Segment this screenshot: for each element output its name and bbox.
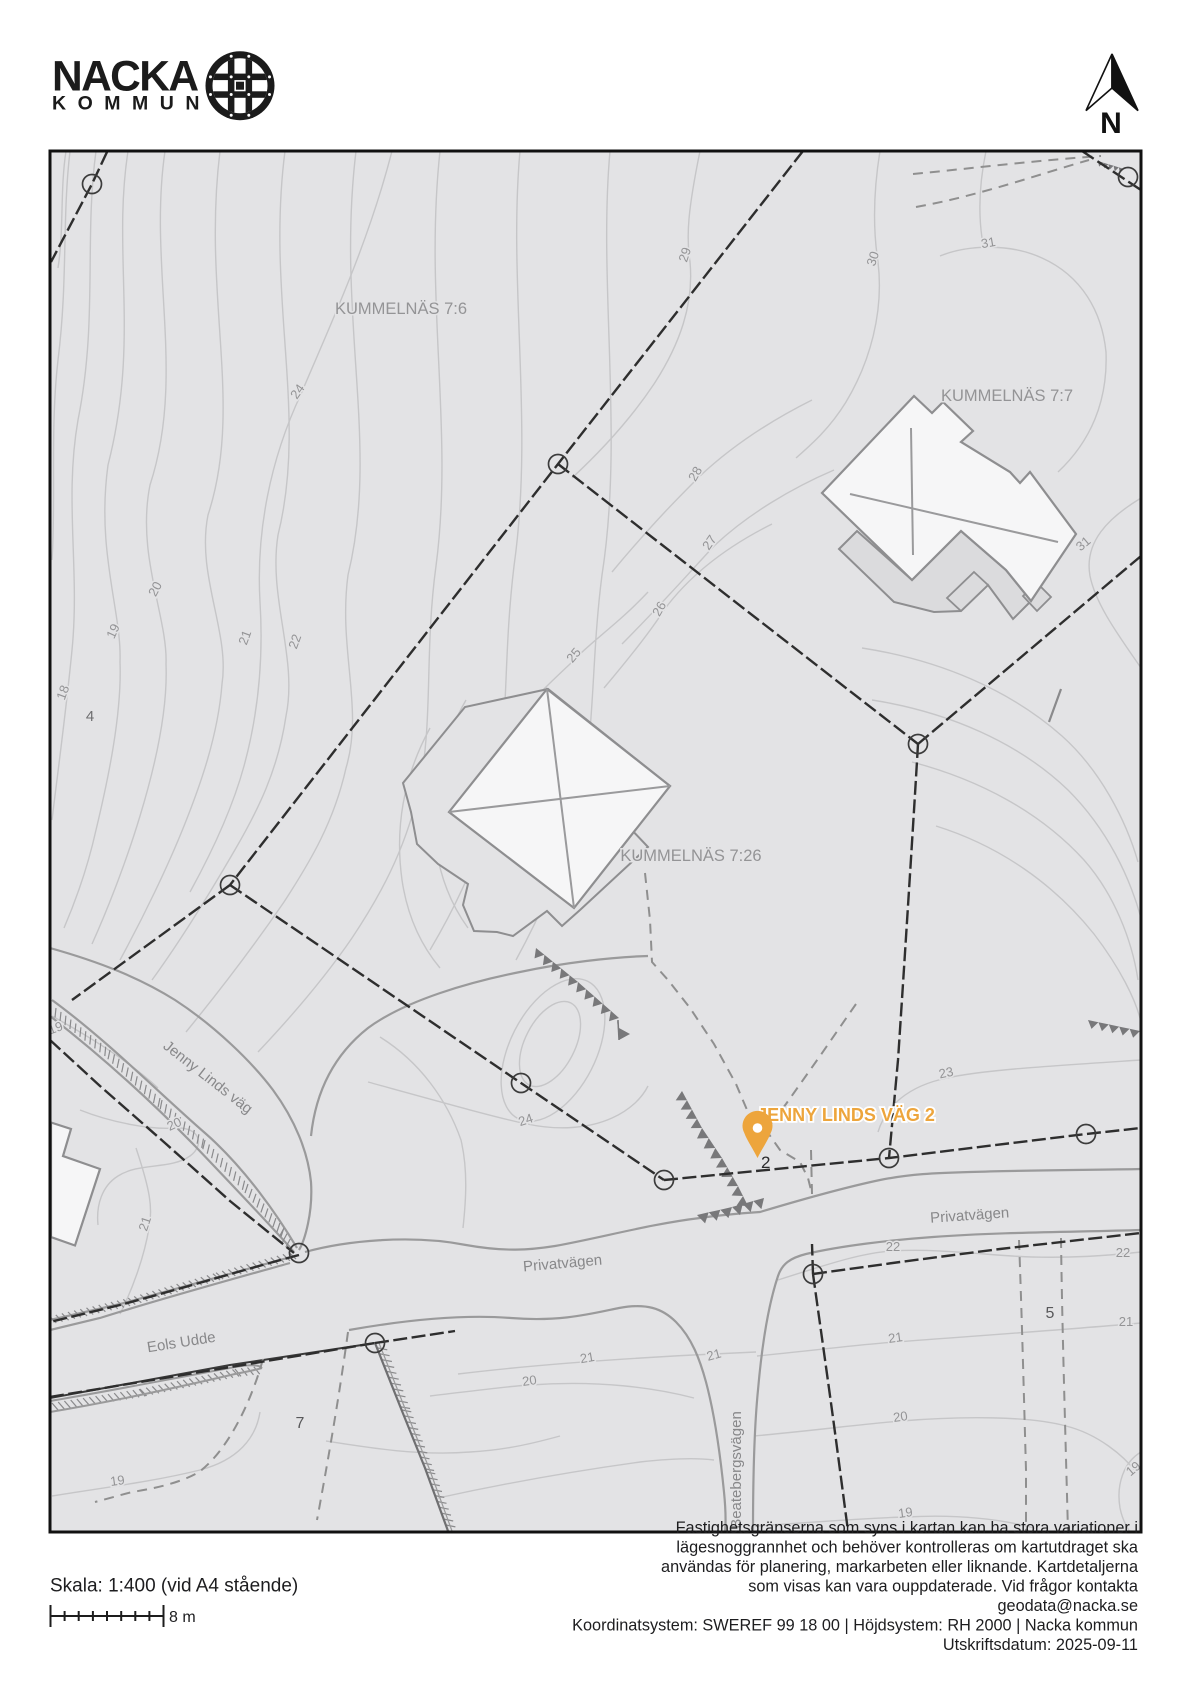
svg-text:lägesnoggrannhet och behöver k: lägesnoggrannhet och behöver kontrollera… [676, 1539, 1139, 1557]
svg-text:Koordinatsystem: SWEREF 99 18: Koordinatsystem: SWEREF 99 18 00 | Höjds… [572, 1617, 1138, 1635]
svg-text:användas för planering, markar: användas för planering, markarbeten elle… [661, 1558, 1139, 1576]
svg-text:Utskriftsdatum: 2025-09-11: Utskriftsdatum: 2025-09-11 [943, 1636, 1138, 1654]
svg-text:20: 20 [892, 1408, 908, 1425]
svg-text:19: 19 [109, 1472, 125, 1489]
svg-text:KOMMUN: KOMMUN [52, 93, 211, 115]
svg-text:21: 21 [1119, 1314, 1133, 1329]
svg-text:JENNY LINDS VÄG 2: JENNY LINDS VÄG 2 [757, 1105, 935, 1125]
svg-text:21: 21 [579, 1349, 596, 1366]
svg-text:KUMMELNÄS 7:7: KUMMELNÄS 7:7 [941, 387, 1073, 405]
svg-text:Fastighetsgränserna som syns i: Fastighetsgränserna som syns i kartan ka… [676, 1519, 1138, 1537]
svg-text:KUMMELNÄS 7:26: KUMMELNÄS 7:26 [620, 847, 761, 865]
svg-text:2: 2 [761, 1153, 770, 1172]
svg-text:21: 21 [887, 1329, 903, 1346]
svg-text:5: 5 [1046, 1305, 1055, 1322]
svg-text:22: 22 [886, 1239, 900, 1254]
svg-text:som visas kan vara ouppdaterad: som visas kan vara ouppdaterade. Vid frå… [748, 1578, 1139, 1596]
svg-text:4: 4 [86, 708, 94, 725]
svg-text:22: 22 [1116, 1245, 1130, 1260]
svg-text:8 m: 8 m [169, 1609, 196, 1626]
svg-text:geodata@nacka.se: geodata@nacka.se [997, 1597, 1138, 1615]
svg-text:Skala: 1:400 (vid A4 stående): Skala: 1:400 (vid A4 stående) [50, 1576, 298, 1597]
svg-text:N: N [1100, 107, 1122, 140]
svg-text:KUMMELNÄS 7:6: KUMMELNÄS 7:6 [335, 300, 467, 318]
svg-text:7: 7 [296, 1415, 305, 1432]
svg-text:31: 31 [980, 234, 997, 251]
svg-text:20: 20 [521, 1372, 537, 1389]
svg-text:23: 23 [937, 1064, 954, 1082]
svg-text:Beatebergsvägen: Beatebergsvägen [728, 1411, 745, 1529]
